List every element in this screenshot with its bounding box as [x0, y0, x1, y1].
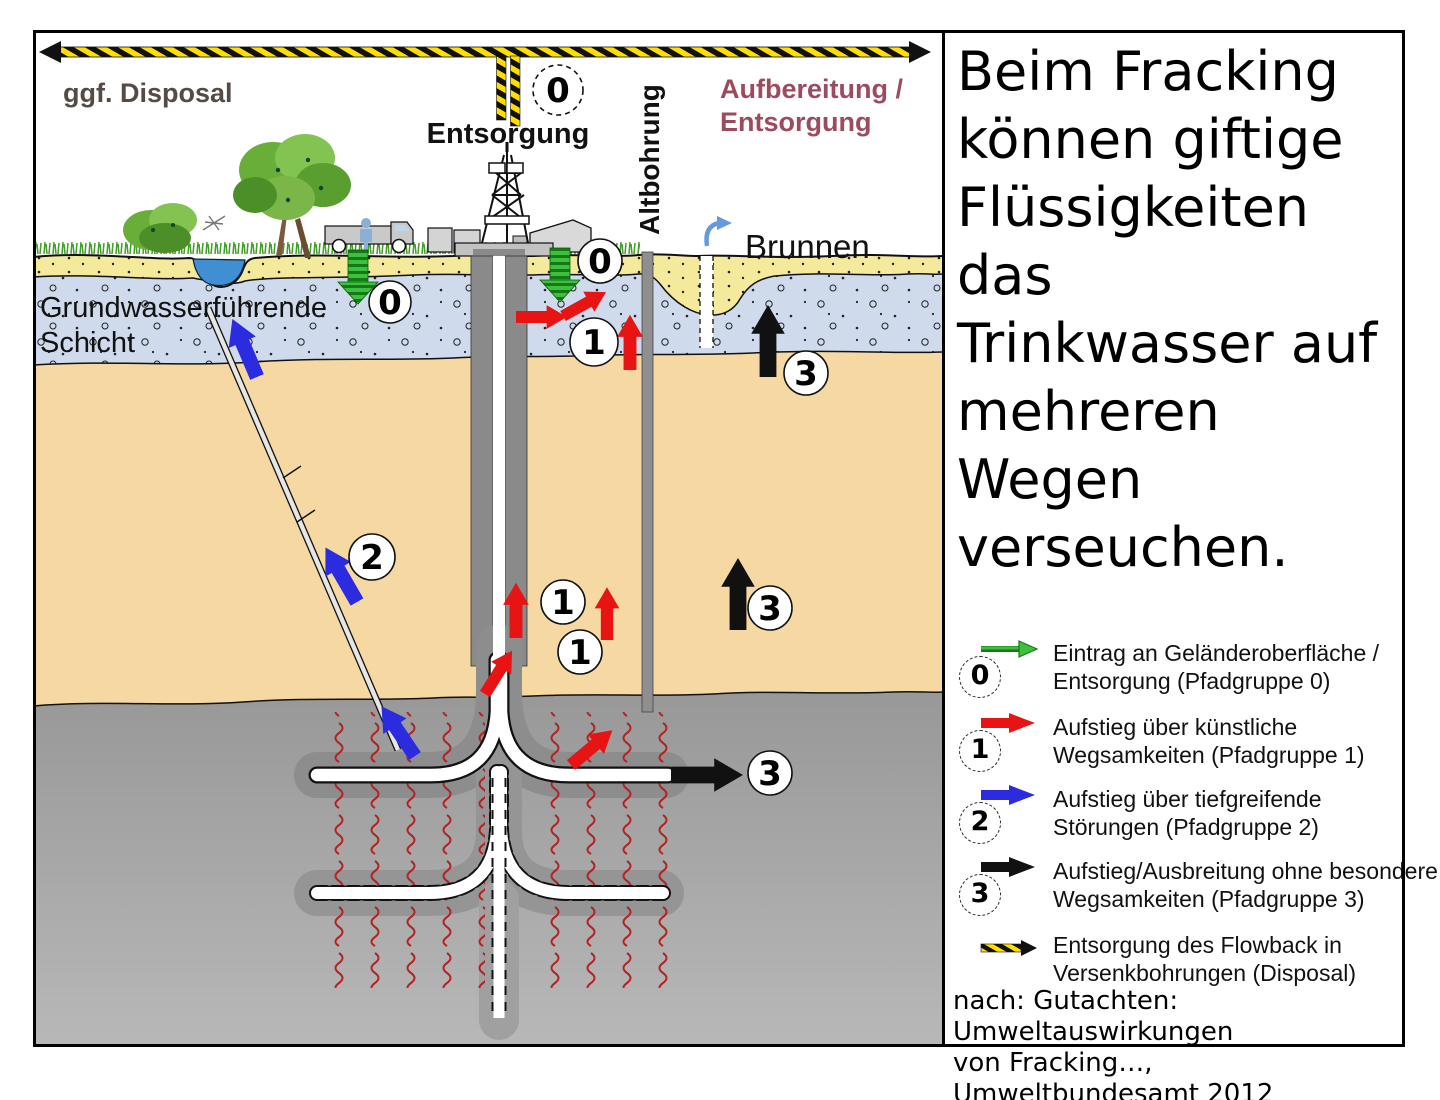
fracking-infographic: 0 0 0 1 1 1 2	[0, 0, 1440, 1100]
outer-frame	[33, 30, 1405, 1047]
